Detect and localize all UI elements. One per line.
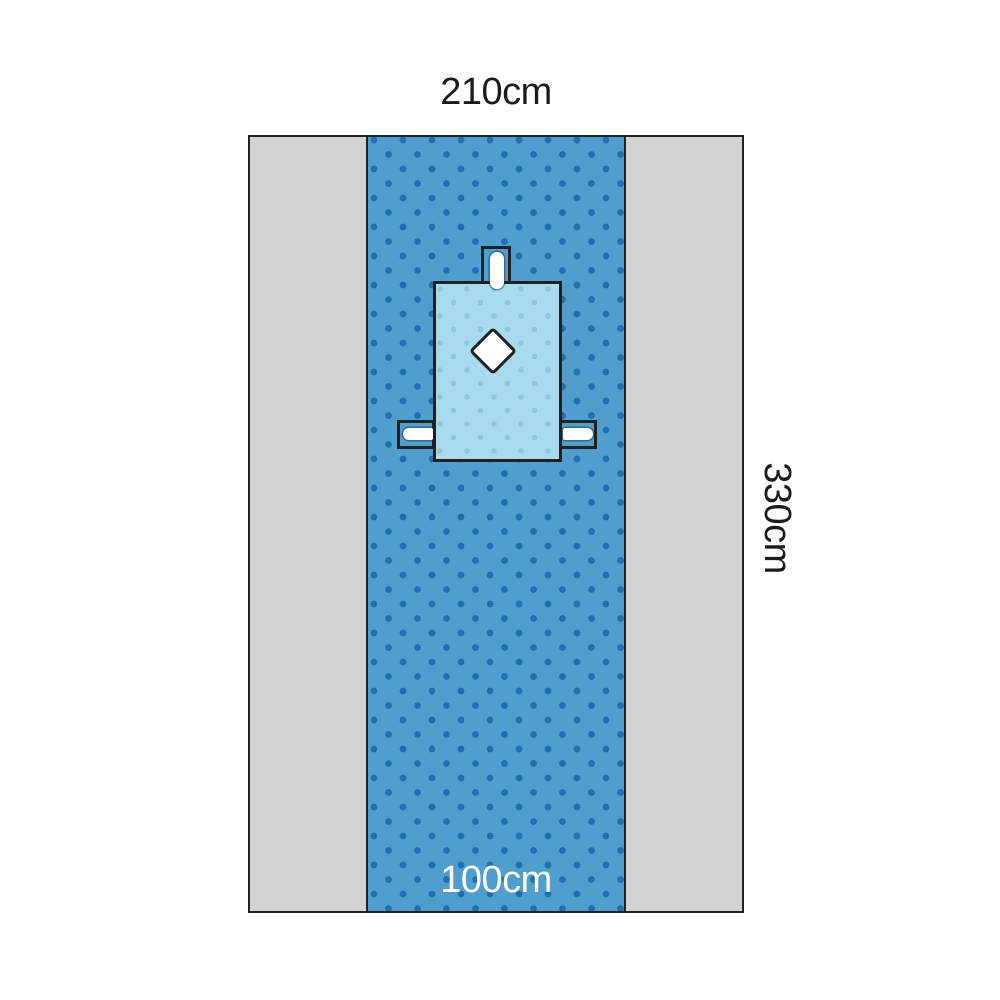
tube-holder-slot-left-icon xyxy=(403,428,433,440)
tube-holder-slot-right-icon xyxy=(563,428,593,440)
height-dimension-label: 330cm xyxy=(756,448,798,588)
width-dimension-label: 210cm xyxy=(366,70,626,115)
surgical-drape-product-diagram: 210cm 330cm 100cm xyxy=(0,0,1000,1000)
reinforcement-patch xyxy=(433,281,562,462)
tube-holder-slot-top-icon xyxy=(490,252,504,289)
band-width-dimension-label: 100cm xyxy=(366,858,626,903)
